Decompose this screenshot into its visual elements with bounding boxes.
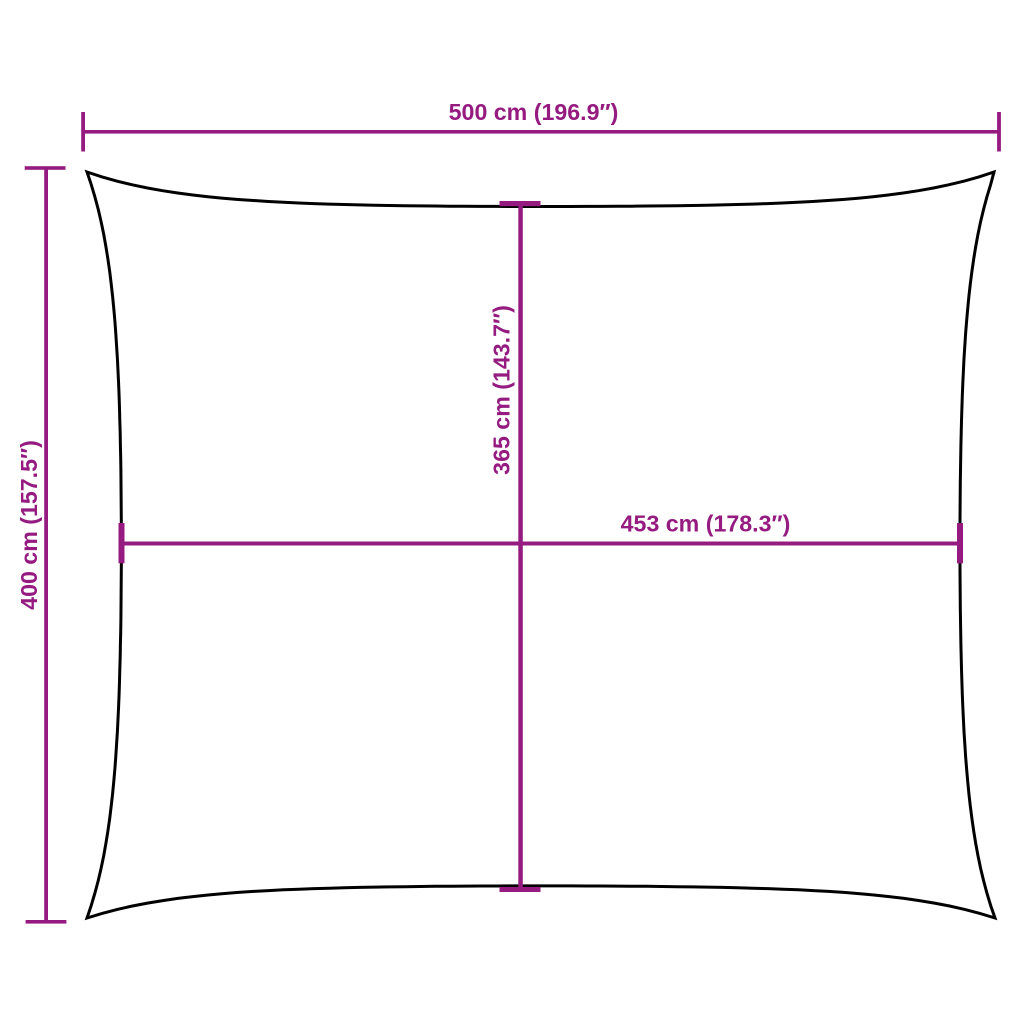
svg-text:453 cm (178.3″): 453 cm (178.3″) (621, 511, 791, 537)
svg-text:400 cm (157.5″): 400 cm (157.5″) (16, 440, 42, 610)
svg-text:500 cm (196.9″): 500 cm (196.9″) (449, 99, 619, 125)
svg-text:365 cm (143.7″): 365 cm (143.7″) (489, 305, 515, 475)
